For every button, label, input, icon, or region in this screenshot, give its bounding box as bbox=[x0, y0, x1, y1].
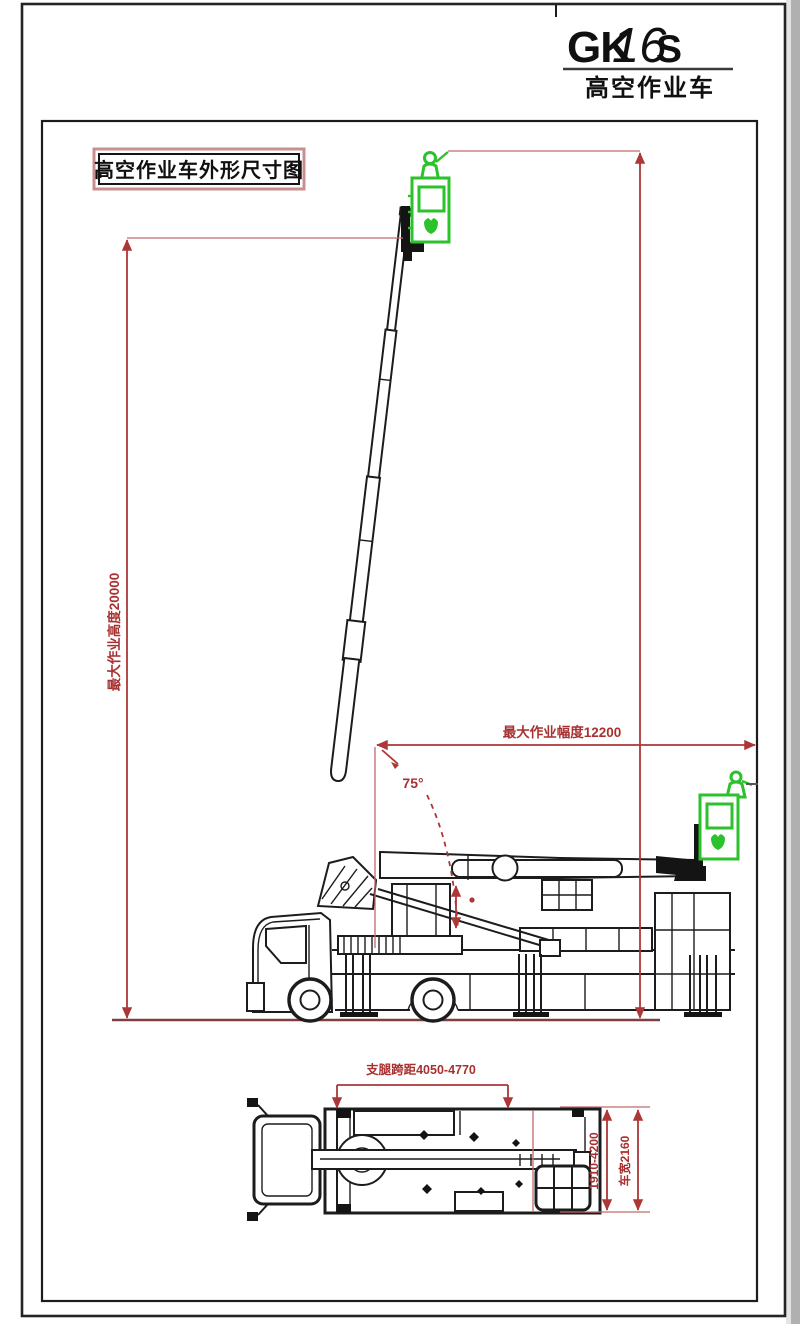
boom-cylinder bbox=[452, 860, 622, 877]
dim-outrigger-span-text: 支腿跨距4050-4770 bbox=[365, 1062, 476, 1077]
deck-cutout-bottom bbox=[455, 1192, 503, 1211]
side-view bbox=[112, 152, 758, 1021]
angle-arc-dot bbox=[469, 897, 474, 902]
upper-basket-window bbox=[419, 187, 444, 211]
mirror-top-icon bbox=[247, 1098, 258, 1107]
rear-outrigger bbox=[513, 954, 549, 1017]
mirror-bottom-icon bbox=[247, 1212, 258, 1221]
outrigger-pad bbox=[572, 1109, 584, 1117]
boom-section-3 bbox=[350, 476, 380, 624]
upper-work-basket bbox=[408, 152, 449, 242]
front-bumper bbox=[247, 983, 264, 1011]
scan-edge-strip-light bbox=[786, 0, 791, 1324]
rear-body bbox=[655, 893, 730, 1017]
upper-operator-arm bbox=[436, 152, 448, 162]
drawing-sheet: GK 16 S 高空作业车 高空作业车外形尺寸图 bbox=[0, 0, 800, 1324]
boom-angle-text: 75° bbox=[402, 775, 423, 791]
dimension-outrigger-span: 支腿跨距4050-4770 bbox=[337, 1062, 508, 1108]
lower-bracket-foot bbox=[674, 866, 706, 881]
boom-collar bbox=[343, 620, 366, 662]
dim-max-reach-text: 最大作业幅度12200 bbox=[503, 724, 622, 740]
boom-section-4 bbox=[330, 658, 359, 782]
title-subtitle-text: 高空作业车 bbox=[585, 74, 715, 102]
angle-leader bbox=[382, 750, 398, 764]
boom-section-2 bbox=[368, 330, 397, 480]
upper-operator-head bbox=[425, 153, 436, 164]
top-view: 支腿跨距4050-4770 1910-4200 车宽2160 bbox=[247, 1062, 650, 1221]
dim-max-height-text: 最大作业高度20000 bbox=[106, 573, 122, 692]
lower-basket-window bbox=[707, 804, 732, 828]
rear-jack-feet bbox=[684, 1012, 722, 1017]
top-view-cab bbox=[247, 1098, 320, 1221]
cylinder-foot bbox=[540, 940, 560, 956]
dim-lateral-span-text: 1910-4200 bbox=[587, 1132, 601, 1190]
drawing-label-text: 高空作业车外形尺寸图 bbox=[94, 158, 304, 182]
telescopic-boom bbox=[328, 207, 414, 782]
upper-bracket-foot bbox=[403, 252, 412, 261]
front-outrigger bbox=[340, 954, 378, 1017]
front-outrigger-foot bbox=[340, 1012, 378, 1017]
dim-vehicle-width-text: 车宽2160 bbox=[617, 1135, 632, 1186]
cylinder-flange bbox=[493, 856, 518, 881]
drawing-label-box: 高空作业车外形尺寸图 bbox=[94, 149, 304, 189]
outrigger-pad bbox=[337, 1204, 351, 1213]
technical-drawing-canvas: GK 16 S 高空作业车 高空作业车外形尺寸图 bbox=[0, 0, 800, 1324]
rear-wheel bbox=[412, 979, 454, 1021]
cab-outline bbox=[254, 1116, 320, 1204]
dimension-vehicle-width: 车宽2160 bbox=[617, 1110, 638, 1210]
top-view-basket bbox=[536, 1166, 590, 1210]
rear-outrigger-foot bbox=[513, 1012, 549, 1017]
lower-work-basket bbox=[700, 772, 758, 859]
model-suffix-text: S bbox=[656, 28, 682, 71]
outrigger-pad bbox=[337, 1109, 351, 1118]
model-title: GK 16 S 高空作业车 bbox=[563, 19, 733, 102]
scan-edge-strip bbox=[791, 0, 800, 1324]
front-wheel bbox=[289, 979, 331, 1021]
deck-cutout-top bbox=[354, 1111, 454, 1135]
